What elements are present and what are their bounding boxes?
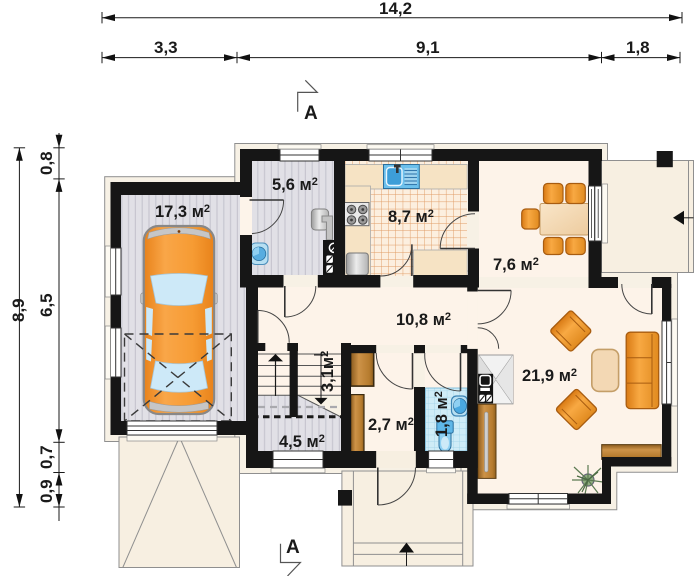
svg-text:4,5 м2: 4,5 м2: [279, 433, 325, 451]
svg-text:A: A: [286, 537, 300, 558]
svg-text:6,5: 6,5: [37, 293, 56, 317]
svg-text:14,2: 14,2: [379, 0, 412, 18]
svg-text:0,9: 0,9: [37, 479, 56, 503]
svg-text:17,3 м2: 17,3 м2: [155, 203, 210, 221]
svg-text:0,7: 0,7: [37, 445, 56, 469]
svg-text:A: A: [304, 103, 318, 124]
svg-text:5,6 м2: 5,6 м2: [272, 176, 318, 194]
svg-text:3,3: 3,3: [154, 38, 178, 57]
svg-text:7,6 м2: 7,6 м2: [493, 256, 539, 274]
svg-text:8,7 м2: 8,7 м2: [388, 208, 434, 226]
svg-text:1,8 м2: 1,8 м2: [433, 391, 451, 437]
svg-text:1,8: 1,8: [626, 38, 650, 57]
svg-text:3,1м2: 3,1м2: [319, 351, 337, 392]
svg-text:0,8: 0,8: [37, 151, 56, 175]
svg-text:10,8 м2: 10,8 м2: [396, 311, 451, 329]
svg-text:8,9: 8,9: [9, 298, 28, 322]
svg-text:9,1: 9,1: [416, 38, 440, 57]
svg-text:21,9 м2: 21,9 м2: [522, 367, 577, 385]
svg-text:2,7 м2: 2,7 м2: [368, 416, 414, 434]
